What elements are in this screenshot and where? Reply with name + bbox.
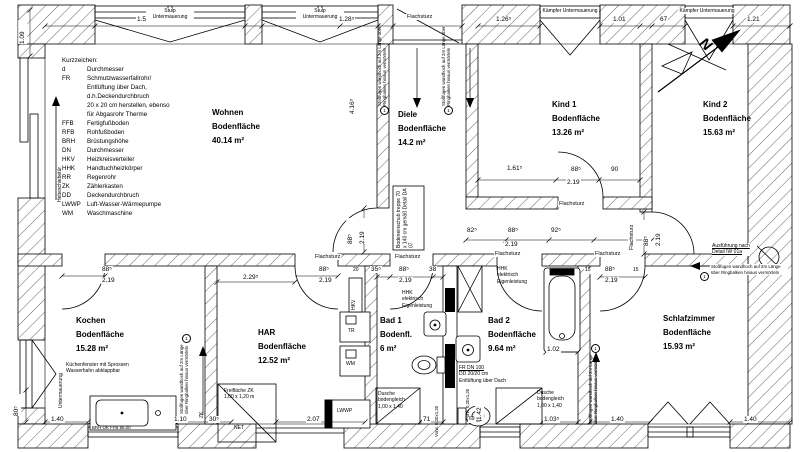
label-tr: TR: [348, 329, 355, 335]
dim-20: 20: [352, 268, 360, 274]
dim-15-b: 15: [632, 268, 640, 274]
wall-top: [18, 5, 790, 44]
legend-row: BRHBrüstungshöhe: [62, 137, 170, 146]
legend-row: RFBRohfußboden: [62, 128, 170, 137]
stossfugen-badge-3: 1: [182, 334, 191, 343]
label-brh: BRH OK FFB 86.00: [92, 426, 131, 431]
dim-142: 1.42: [475, 390, 484, 420]
dim-103: 1.03⁵: [543, 416, 560, 423]
dim-67: 67: [659, 16, 668, 23]
stossfugen-badge-4: 1: [591, 344, 600, 353]
door-arc-kind1: [558, 152, 603, 197]
label-kaempfer-1: Kämpfer Untermauerung: [541, 8, 599, 14]
dim-126: 1.26⁵: [495, 16, 512, 23]
dim-110: 1.10: [173, 416, 188, 423]
label-zk: ZK: [200, 402, 206, 418]
label-fr-dn: FR DN 100DD 20/20 cmEntlüftung über Dach: [459, 365, 506, 384]
dim-bad1-88: 88⁵: [398, 266, 410, 273]
dim-140-kochen: 1.40: [50, 416, 65, 423]
dim-416: 4.16⁵: [348, 84, 357, 114]
dryer-box: [340, 312, 370, 342]
label-flachsturz-2: Flachsturz: [314, 254, 341, 260]
shower-bad2: [496, 388, 542, 424]
dim-har-88: 88⁵: [318, 266, 330, 273]
toilet-bad1: [412, 356, 445, 374]
dim-109: 1.09: [18, 20, 27, 44]
stossfugen-note-3: Stoßfugen wandhoch auf 2m Länge über Rin…: [180, 344, 195, 414]
dim-schlaf-88: 88⁵: [604, 266, 616, 273]
label-hkv: HKV: [352, 282, 358, 310]
room-label-kind2: Kind 2Bodenfläche15.63 m²: [703, 98, 751, 140]
room-label-har: HARBodenfläche12.52 m²: [258, 326, 306, 368]
legend-title: Kurzzeichen:: [62, 56, 170, 65]
door-arc-har: [295, 266, 338, 309]
stossfugen-note-2: Stoßfugen wandhoch auf 2m Länge über Rin…: [442, 26, 457, 106]
dim-140-schlaf-2: 1.40: [743, 416, 758, 423]
label-wm: WM: [346, 362, 355, 368]
label-flachsturz-7: Flachsturz: [558, 201, 585, 207]
washer-box: [340, 346, 370, 376]
wall-right: [748, 44, 792, 424]
installation-wall: [443, 266, 457, 424]
label-stulp-1: Stulp Untermauerung: [146, 8, 194, 21]
legend: Kurzzeichen: dDurchmesser FRSchmutzwasse…: [62, 56, 170, 218]
dim-bad1-219: 2.19: [398, 277, 413, 284]
dim-corr-88: 88⁵: [507, 227, 519, 234]
label-dusche-bad2: Duschebodengleich1,00 x 1,40: [537, 390, 564, 409]
legend-row: FFBFertigfußboden: [62, 119, 170, 128]
label-kuechenfenster: Küchenfenster mit SprossenWasserhahn abk…: [66, 362, 129, 375]
washbasin-bad1: [424, 312, 446, 336]
dim-207: 2.07: [306, 416, 321, 423]
stossfugen-badge-5: 1: [700, 272, 709, 281]
label-hhk-bad1: HHKelektrischEigenleistung: [402, 290, 432, 309]
label-dusche-bad1: Duschebodengleich1,00 x 1,40: [378, 391, 405, 410]
niche-bottom: [256, 428, 344, 433]
washbasin-bad2: [456, 336, 480, 362]
legend-row: Entlüftung über Dach,: [62, 83, 170, 92]
window-kitchen-left: [20, 340, 56, 408]
label-net: NET: [234, 426, 244, 432]
room-label-kochen: KochenBodenfläche15.28 m²: [76, 314, 124, 356]
dim-har-219: 2.19: [318, 277, 333, 284]
legend-row: FRSchmutzwasserfallrohr/: [62, 74, 170, 83]
window-schlafzimmer: [648, 402, 730, 437]
legend-row: RRRegenrohr: [62, 173, 170, 182]
label-vorwand-1: Vorw. 0,20x1,20: [435, 385, 440, 437]
dim-kind2-219: 2.19: [654, 220, 663, 246]
room-label-diele: DieleBodenfläche14.2 m²: [398, 108, 446, 150]
label-flachsturz-6: Flachsturz: [628, 212, 636, 250]
dim-71: 71: [422, 416, 431, 423]
dim-kochen-88: 88⁵: [101, 266, 113, 273]
dim-kochen-219: 2.19: [101, 277, 116, 284]
door-arc-kochen: [62, 266, 105, 309]
label-lwwp: LWWP: [337, 409, 352, 415]
legend-row: dDurchmesser: [62, 65, 170, 74]
legend-row: DNDurchmesser: [62, 146, 170, 155]
label-untermauerung: Untermauerung: [59, 342, 65, 408]
room-label-schlafzimmer: SchlafzimmerBodenfläche15.93 m²: [663, 312, 715, 354]
dim-kind1-88: 88⁵: [570, 166, 582, 173]
dim-door-wd-219: 2.19: [358, 218, 367, 244]
legend-row: für Abgasrohr Therme: [62, 110, 170, 119]
room-label-kind1: Kind 1Bodenfläche13.26 m²: [552, 98, 600, 140]
label-kaempfer-2: Kämpfer Untermauerung: [678, 8, 736, 14]
legend-row: LWWPLuft-Wasser-Wärmepumpe: [62, 200, 170, 209]
lift-slide-door: [20, 58, 60, 200]
label-freiflaeche: Freifläche ZK1,00 x 1,20 m: [224, 388, 254, 401]
legend-row: ZKZählerkasten: [62, 182, 170, 191]
stossfugen-note-1: Stoßfugen wandhoch auf 2m Länge über Rin…: [378, 26, 393, 106]
dim-corr-82: 82⁵: [466, 227, 478, 234]
dim-128: 1.28⁵: [338, 16, 355, 23]
dim-161: 1.61⁵: [506, 165, 523, 172]
stossfugen-note-5: Stoßfugen wandhoch auf 2m Länge über Rin…: [710, 264, 788, 275]
dim-door-wd-88: 88⁵: [346, 218, 355, 244]
room-label-wohnen: WohnenBodenfläche40.14 m²: [212, 106, 260, 148]
room-label-bad1: Bad 1Bodenfl.6 m²: [380, 314, 412, 356]
stossfugen-note-4: Stoßfugen wandhoch auf 2m Länge über Rin…: [589, 354, 604, 424]
dim-kind1-219: 2.19: [566, 179, 581, 186]
legend-row: HKVHeizkreisverteiler: [62, 155, 170, 164]
label-hhk-bad2: HHKelektrischEigenleistung: [497, 266, 527, 285]
attic-hatch-note: Bodeneinschub treppe 70 x 140 cm gemäß D…: [396, 188, 420, 248]
dim-15-a: 15: [584, 268, 592, 274]
label-flachsturz-3: Flachsturz: [394, 254, 421, 260]
bathtub: [544, 268, 580, 352]
dim-schlaf-219: 2.19: [604, 277, 619, 284]
dim-bad1-38: 38: [428, 266, 437, 273]
dim-121: 1.21: [746, 16, 761, 23]
dim-101: 1.01: [612, 16, 627, 23]
floor-plan: Kurzzeichen: dDurchmesser FRSchmutzwasse…: [0, 0, 803, 452]
stossfugen-badge-1: 1: [380, 106, 389, 115]
stossfugen-badge-2: 1: [444, 106, 453, 115]
label-stulp-2: Stulp Untermauerung: [296, 8, 344, 21]
label-ausfuehrung: Ausführung nachDetail IW 01a: [712, 243, 750, 256]
window-bad2-bottom: [480, 427, 520, 437]
dim-80: 80⁵: [12, 394, 21, 416]
dim-bad1-35: 35⁵: [370, 266, 382, 273]
dim-69: 69: [468, 417, 476, 423]
dim-kind2-88: 88⁵: [642, 220, 651, 246]
dim-corr-219: 2.19: [504, 241, 519, 248]
dim-140-schlaf-1: 1.40: [610, 416, 625, 423]
shaft: [458, 266, 482, 312]
label-flachsturz-entrance: Flachsturz: [406, 14, 433, 20]
dim-30: 30⁵: [208, 416, 220, 423]
label-flachsturz-4: Flachsturz: [494, 251, 521, 257]
legend-row: d.h.Deckendurchbruch: [62, 92, 170, 101]
label-flachsturz-5: Flachsturz: [594, 251, 621, 257]
dim-102: 1.02: [546, 346, 561, 353]
legend-row: DDDeckendurchbruch: [62, 191, 170, 200]
dim-229: 2.29⁵: [242, 274, 259, 281]
dim-corr-92: 92⁵: [550, 227, 562, 234]
legend-row: WMWaschmaschine: [62, 209, 170, 218]
room-label-bad2: Bad 2Bodenfläche9.64 m²: [488, 314, 536, 356]
dim-90: 90: [610, 166, 619, 173]
legend-row: 20 x 20 cm herstellen, ebenso: [62, 101, 170, 110]
label-hebeschiebetuer: Hebeschiebetür: [58, 118, 64, 202]
legend-row: HHKHandtuchheizkörper: [62, 164, 170, 173]
